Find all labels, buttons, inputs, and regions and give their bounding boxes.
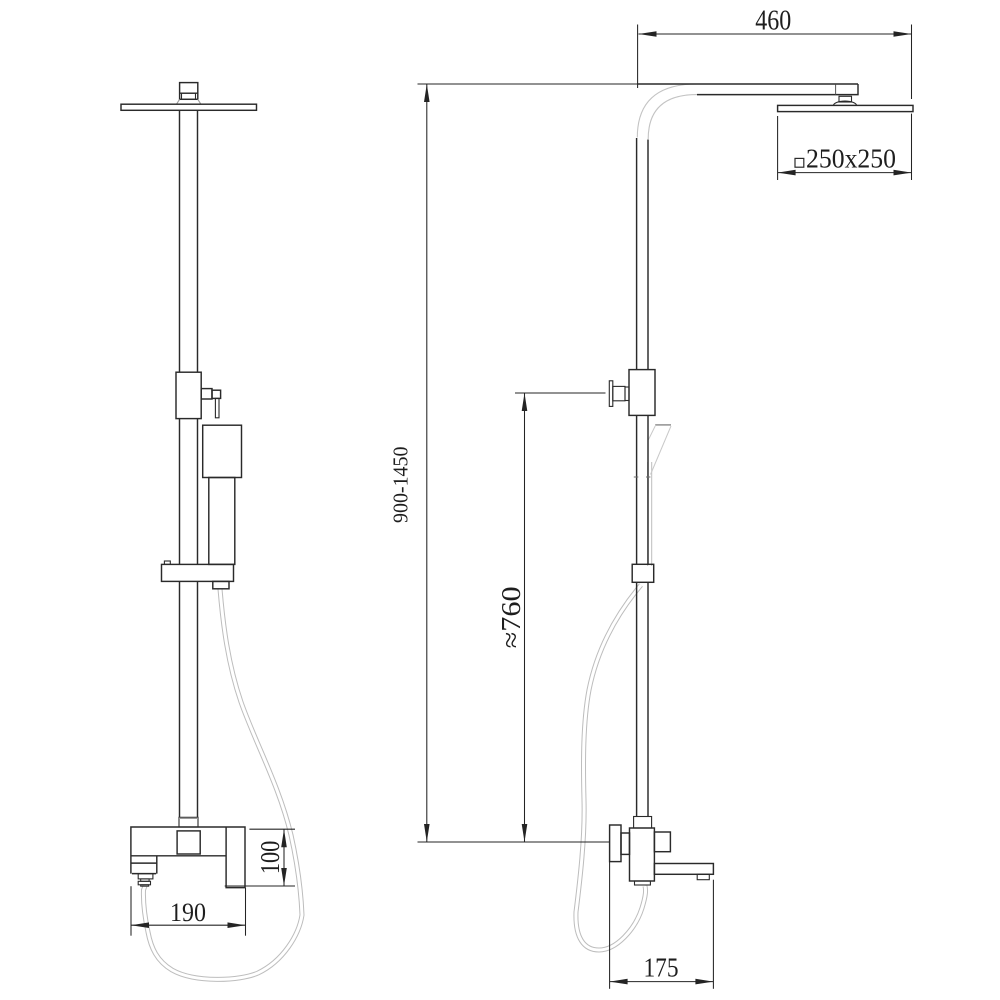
svg-text:100: 100 bbox=[254, 841, 285, 875]
svg-text:250x250: 250x250 bbox=[806, 144, 896, 175]
svg-text:175: 175 bbox=[644, 952, 679, 983]
svg-text:190: 190 bbox=[170, 897, 206, 927]
svg-text:900-1450: 900-1450 bbox=[389, 447, 413, 524]
svg-text:460: 460 bbox=[755, 6, 791, 37]
svg-text:≈760: ≈760 bbox=[496, 586, 526, 648]
